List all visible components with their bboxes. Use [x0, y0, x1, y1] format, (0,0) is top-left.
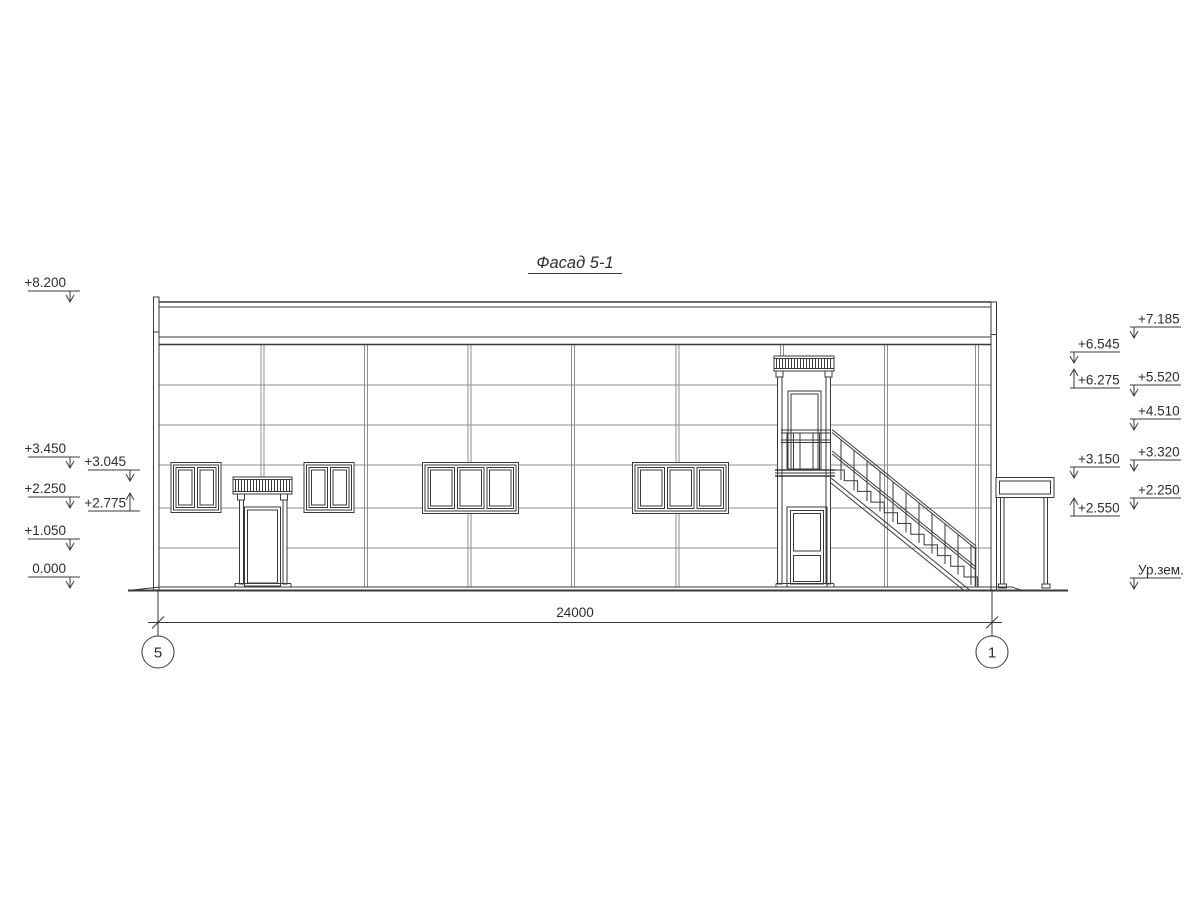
left-corner-column	[154, 297, 160, 590]
axis-number-left: 5	[154, 645, 162, 662]
elevation-mark: +6.275	[1070, 369, 1120, 388]
stair-tower	[774, 356, 835, 587]
sign-board	[996, 478, 1054, 589]
elevation-value: +4.510	[1138, 404, 1180, 419]
elevation-mark: +3.450	[24, 441, 80, 468]
elevation-arrow-down-icon	[28, 497, 80, 508]
elevation-value: +2.250	[24, 481, 66, 496]
elevation-value: +3.150	[1078, 452, 1120, 467]
fire-escape-stairs	[831, 430, 977, 591]
ground-line	[128, 587, 1068, 591]
elevation-arrow-down-icon	[28, 457, 80, 468]
elevation-value: +3.320	[1138, 445, 1180, 460]
elevation-mark-ground-level: Ур.зем.	[1130, 563, 1184, 590]
elevation-arrow-down-icon	[1130, 419, 1181, 430]
elevation-arrow-down-icon	[1130, 460, 1181, 471]
window-4	[633, 463, 729, 514]
elevation-value: +6.545	[1078, 337, 1120, 352]
axis-number-right: 1	[988, 645, 996, 662]
elevation-mark: +2.550	[1070, 498, 1120, 516]
drawing-title: Фасад 5-1	[528, 254, 622, 274]
dimension-value: 24000	[556, 605, 594, 620]
elevation-marks-left-inner: +3.045 +2.775	[84, 454, 140, 511]
elevation-marks-right-outer: +7.185 +5.520 +4.510 +3.320 +2.250 Ур.зе…	[1130, 312, 1184, 590]
elevation-value: +5.520	[1138, 370, 1180, 385]
elevation-marks-right-inner: +6.545 +6.275 +3.150 +2.550	[1070, 337, 1120, 517]
facade-drawing-sheet: Фасад 5-1	[0, 0, 1200, 900]
elevation-mark: +6.545	[1070, 337, 1120, 364]
elevation-value: +3.045	[84, 454, 126, 469]
elevation-mark: +2.250	[1130, 483, 1181, 510]
axis-bubble-5: 5	[142, 636, 174, 668]
elevation-arrow-down-icon	[1130, 327, 1181, 338]
elevation-mark: +4.510	[1130, 404, 1181, 431]
window-1	[171, 463, 221, 513]
door-post-right	[283, 494, 287, 584]
elevation-arrow-down-icon	[28, 291, 80, 302]
stair-stringer	[831, 478, 970, 590]
window-3	[423, 463, 519, 514]
sign-post-right	[1044, 498, 1048, 585]
axis-bubble-1: 1	[976, 636, 1008, 668]
elevation-mark: +3.150	[1070, 452, 1120, 479]
facade-5-1-drawing: Фасад 5-1	[0, 0, 1200, 900]
elevation-mark: +5.520	[1130, 370, 1181, 397]
elevation-value: +7.185	[1138, 312, 1180, 327]
elevation-arrow-down-icon	[1070, 352, 1120, 363]
elevation-value: 0.000	[32, 561, 66, 576]
parapet-fascia	[159, 302, 991, 345]
elevation-mark: +2.250	[24, 481, 80, 508]
elevation-mark: +7.185	[1130, 312, 1181, 339]
elevation-value: +2.250	[1138, 483, 1180, 498]
elevation-value: +8.200	[24, 275, 66, 290]
elevation-arrow-down-icon	[28, 539, 80, 550]
elevation-mark: +2.775	[84, 493, 140, 511]
elevation-value: +3.450	[24, 441, 66, 456]
entrance-door	[233, 477, 292, 587]
elevation-arrow-down-icon	[28, 577, 80, 588]
elevation-marks-left-outer: +8.200 +3.450 +2.250 +1.050 0.000	[24, 275, 80, 588]
door-post-left	[240, 494, 244, 584]
ground-level-label: Ур.зем.	[1138, 563, 1184, 578]
elevation-arrow-down-icon	[1130, 578, 1181, 589]
elevation-mark: +8.200	[24, 275, 80, 302]
elevation-mark: +3.045	[84, 454, 140, 481]
elevation-value: +2.775	[84, 496, 126, 511]
tower-post-left	[778, 371, 783, 584]
elevation-mark: +3.320	[1130, 445, 1181, 472]
right-corner-column	[991, 302, 997, 590]
elevation-arrow-down-icon	[1070, 467, 1120, 478]
elevation-mark: 0.000	[28, 561, 80, 588]
elevation-value: +6.275	[1078, 373, 1120, 388]
elevation-arrow-down-icon	[1130, 498, 1181, 509]
elevation-value: +1.050	[24, 523, 66, 538]
elevation-value: +2.550	[1078, 501, 1120, 516]
elevation-arrow-down-icon	[1130, 385, 1181, 396]
drawing-title-text: Фасад 5-1	[536, 254, 613, 272]
stair-balusters	[841, 440, 971, 586]
sign-post-left	[1001, 498, 1005, 585]
window-2	[304, 463, 354, 513]
elevation-mark: +1.050	[24, 523, 80, 550]
elevation-arrow-down-icon	[88, 470, 140, 481]
dimension-and-axes: 24000 5 1	[142, 591, 1008, 669]
